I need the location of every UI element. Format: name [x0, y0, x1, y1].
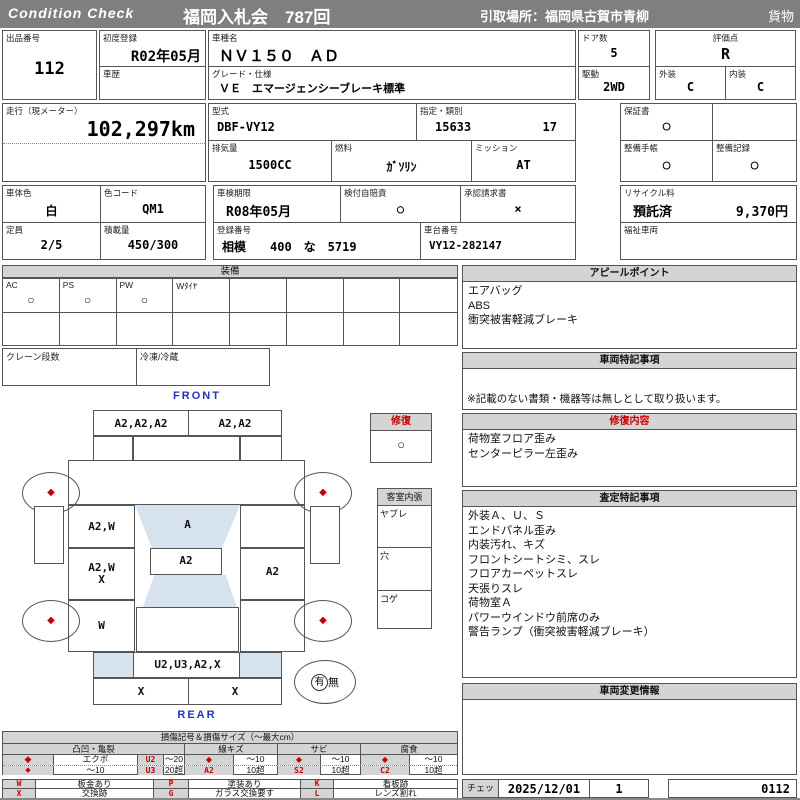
load-label: 積載量 [104, 224, 130, 236]
legend-code-u3: U3 [138, 766, 164, 775]
repair-flag-mark: ○ [371, 437, 431, 452]
check-date: 2025/12/01 [508, 782, 580, 796]
score-label: 評価点 [656, 32, 795, 44]
assessment-line: 荷物室Ａ [463, 596, 796, 611]
damage-diamond-icon: ◆ [319, 616, 327, 626]
equipment-mark: ○ [60, 293, 116, 307]
legend-size: ～10 [410, 755, 457, 765]
left-side-rail [34, 506, 64, 564]
sheet-code: 0112 [761, 782, 796, 796]
first-reg-value: R02年05月 [131, 46, 201, 66]
rear-label: REAR [152, 709, 242, 721]
legend-code-u2: U2 [138, 755, 164, 765]
recycle-status: 預託済 [633, 201, 672, 220]
spare-tire-mark: 有 無 [294, 660, 356, 704]
cabin-row-burn: コゲ [378, 591, 431, 628]
maintenance-book-mark: ○ [621, 158, 712, 173]
equipment-cell-empty [230, 279, 287, 313]
header-bar: Condition Check 福岡入札会 787回 引取場所：福岡県古賀市青柳… [0, 0, 800, 28]
legend-code-k-label: 看板跡 [334, 780, 457, 788]
grade-label: グレード・仕様 [212, 68, 272, 80]
cabin-lining-box: 客室内張 ヤブレ 穴 コゲ [377, 488, 432, 629]
legend-size: 10超 [410, 766, 457, 775]
interior-value: C [726, 80, 795, 94]
vehicle-notes-disclaimer: ※記載のない書類・機器等は無しとして取り扱います。 [467, 391, 726, 406]
assessment-line: エンドパネル歪み [463, 524, 796, 539]
vehicle-notes-title: 車両特記事項 [463, 353, 796, 369]
legend-group-corrosion: 腐食 [361, 744, 457, 754]
type-label: 型式 [212, 105, 229, 117]
color-box: 車体色 白 色コード QM1 定員 2/5 積載量 450/300 [2, 185, 206, 260]
maintenance-record-mark: ○ [713, 158, 796, 173]
appeal-line: ABS [463, 299, 796, 314]
repair-flag-title: 修復 [371, 414, 431, 431]
assessment-line: 天張りスレ [463, 582, 796, 597]
left-front-fender: A2,W [68, 505, 135, 548]
repair-code-legend-table: W 板金あり P 塗装あり K 看板跡 X 交換跡 G ガラス交換要す L レン… [2, 779, 458, 800]
repair-content-section: 修復内容 荷物室フロア歪み センターピラー左歪み [462, 413, 797, 487]
roof-panel: A2 [150, 548, 222, 575]
rear-gate-strip: X X [93, 678, 282, 705]
left-front-fender-damage: A2,W [69, 520, 134, 533]
insurance-label: 検付自賠責 [344, 187, 387, 199]
equipment-cell-empty [344, 279, 401, 313]
left-side-damage-2: X [69, 573, 134, 586]
front-center-panel [133, 436, 240, 461]
lot-number-value: 112 [3, 59, 96, 79]
equipment-cell-empty [3, 313, 60, 345]
crane-reefer-box: クレーン段数 冷凍/冷蔵 [2, 348, 270, 386]
front-bumper-left-damage: A2,A2,A2 [94, 417, 188, 430]
documents-box: 保証書 ○ 整備手帳 ○ 整備記録 ○ [620, 103, 797, 182]
right-front-fender [240, 505, 305, 548]
rear-gate-left-damage: X [94, 685, 188, 698]
vehicle-notes-section: 車両特記事項 ※記載のない書類・機器等は無しとして取り扱います。 [462, 352, 797, 410]
repair-line: 荷物室フロア歪み [463, 432, 796, 447]
auction-title: 福岡入札会 787回 [183, 3, 330, 28]
appeal-line: エアバッグ [463, 284, 796, 299]
capacity-value: 2/5 [3, 238, 100, 252]
body-color-value: 白 [3, 202, 100, 219]
equipment-cell-ps: PS ○ [60, 279, 117, 313]
type-value: DBF-VY12 [217, 120, 275, 134]
cabin-lining-title: 客室内張 [378, 489, 431, 506]
check-date-cell: 2025/12/01 [498, 779, 590, 798]
assessment-notes-title: 査定特記事項 [463, 491, 796, 507]
equipment-cell-empty [173, 313, 230, 345]
interior-label: 内装 [729, 68, 746, 80]
equipment-label: Wﾀｲﾔ [176, 280, 197, 292]
inspection-label: 車検期限 [217, 187, 251, 199]
class-label: 指定・類別 [420, 105, 463, 117]
warranty-label: 保証書 [624, 105, 650, 117]
legend-size: 20超 [164, 766, 185, 775]
assessment-line: 警告ランプ（衝突被害軽減ブレーキ） [463, 625, 796, 640]
cabin-row-tear: ヤブレ [378, 506, 431, 548]
capacity-label: 定員 [6, 224, 23, 236]
registration-box: 初度登録 R02年05月 車歴 [99, 30, 206, 100]
model-label: 車種名 [212, 32, 238, 44]
maintenance-record-label: 整備記録 [716, 142, 750, 154]
approval-mark: × [461, 202, 575, 216]
inspection-box: 車検期限 R08年05月 検付自賠責 ○ 承認請求書 × 登録番号 相模 400… [213, 185, 576, 260]
windshield: A [135, 505, 240, 548]
model-box: 車種名 ＮＶ１５０ ＡＤ グレード・仕様 ＶＥ エマージェンシーブレーキ標準 [208, 30, 576, 100]
legend-code-a2: A2 [185, 766, 234, 775]
lot-number-label: 出品番号 [6, 32, 40, 44]
equipment-cell-wtire: Wﾀｲﾔ [173, 279, 230, 313]
crane-label: クレーン段数 [6, 350, 60, 363]
equipment-cell-empty [117, 313, 174, 345]
rear-bumper: U2,U3,A2,X [93, 652, 282, 678]
displacement-label: 排気量 [212, 142, 238, 154]
appeal-points-section: アピールポイント エアバッグ ABS 衝突被害軽減ブレーキ [462, 265, 797, 349]
chassis-value: VY12-282147 [429, 239, 502, 252]
front-label: FRONT [152, 390, 242, 402]
legend-diamond-icon: ◆ [361, 755, 410, 765]
front-left-corner [93, 436, 133, 461]
mileage-label: 走行（現メーター） [6, 105, 83, 117]
color-code-value: QM1 [101, 202, 205, 216]
equipment-cell-empty [60, 313, 117, 345]
doors-value: 5 [579, 46, 649, 60]
cabin-row-hole: 穴 [378, 548, 431, 591]
assessment-line: パワーウインドウ前席のみ [463, 611, 796, 626]
equipment-grid: AC ○ PS ○ PW ○ Wﾀｲﾔ [2, 278, 458, 346]
legend-group-dent: 凸凹・亀裂 [3, 744, 185, 754]
assessment-line: フロントシートシミ、スレ [463, 553, 796, 568]
left-side-panel: A2,W X [68, 548, 135, 600]
check-label-cell: チェック [462, 779, 499, 798]
assessment-line: フロアカーペットスレ [463, 567, 796, 582]
equipment-title-bar: 装備 [2, 265, 458, 278]
drive-label: 駆動 [582, 68, 599, 80]
hood-panel [68, 460, 305, 505]
legend-code-s2: S2 [278, 766, 321, 775]
damage-diamond-icon: ◆ [319, 488, 327, 498]
vehicle-category: 貨物 [768, 6, 794, 25]
doors-label: ドア数 [582, 32, 608, 44]
legend-title: 損傷記号＆損傷サイズ（～最大cm） [3, 732, 457, 743]
chassis-label: 車台番号 [424, 224, 458, 236]
mileage-value: 102,297km [87, 117, 195, 141]
spare-present: 有 [311, 674, 328, 691]
change-info-section: 車両変更情報 [462, 683, 797, 775]
check-count-cell: 1 [589, 779, 649, 798]
right-side-panel: A2 [240, 548, 305, 600]
assessment-line: 外装Ａ、Ｕ、Ｓ [463, 509, 796, 524]
legend-group-rust: サビ [278, 744, 361, 754]
equipment-cell-empty [230, 313, 287, 345]
score-box: 評価点 R 外装 C 内装 C [655, 30, 796, 100]
spare-absent: 無 [328, 674, 339, 690]
equipment-cell-empty [344, 313, 401, 345]
engine-box: 型式 DBF-VY12 指定・類別 15633 17 排気量 1500CC 燃料… [208, 103, 576, 182]
equipment-cell-empty [287, 313, 344, 345]
legend-size: ～10 [54, 766, 138, 775]
fuel-value: ｶﾞｿﾘﾝ [332, 158, 471, 175]
legend-code-c2: C2 [361, 766, 410, 775]
legend-code-w-label: 板金あり [36, 780, 154, 788]
recycle-box: リサイクル料 預託済 9,370円 福祉車両 [620, 185, 797, 260]
legend-size: ～20 [164, 755, 185, 765]
score-value: R [656, 45, 795, 63]
maintenance-book-label: 整備手帳 [624, 142, 658, 154]
front-right-corner [240, 436, 282, 461]
displacement-value: 1500CC [209, 158, 331, 172]
first-reg-label: 初度登録 [103, 32, 137, 44]
reg-no-label: 登録番号 [217, 224, 251, 236]
left-rear-damage: W [69, 619, 134, 632]
damage-diagram: FRONT ◆ ◆ ◆ ◆ A2,A2,A2 A2,A2 A2,W [0, 388, 460, 728]
exterior-value: C [656, 80, 725, 94]
equipment-cell-pw: PW ○ [117, 279, 174, 313]
equipment-label: PW [120, 280, 134, 290]
warranty-mark: ○ [621, 119, 712, 134]
mission-value: AT [472, 158, 575, 172]
appeal-points-title: アピールポイント [463, 266, 796, 282]
rear-window [143, 575, 237, 607]
reg-no-value: 相模 400 な 5719 [222, 238, 357, 255]
legend-size: ～10 [234, 755, 278, 765]
fuel-label: 燃料 [335, 142, 352, 154]
left-rear-fender: W [68, 600, 135, 652]
check-count: 1 [615, 782, 622, 796]
damage-legend-table: 損傷記号＆損傷サイズ（～最大cm） 凸凹・亀裂 線キズ サビ 腐食 ◆ エクボ … [2, 731, 458, 775]
legend-size: 10超 [234, 766, 278, 775]
class-value-1: 15633 [435, 120, 471, 134]
legend-code-w: W [3, 780, 36, 788]
repair-content-title: 修復内容 [463, 414, 796, 430]
assessment-notes-section: 査定特記事項 外装Ａ、Ｕ、Ｓ エンドパネル歪み 内装汚れ、キズ フロントシートシ… [462, 490, 797, 678]
assessment-line: 内装汚れ、キズ [463, 538, 796, 553]
brand-logo: Condition Check [8, 5, 134, 21]
welfare-label: 福祉車両 [624, 224, 658, 236]
mileage-box: 走行（現メーター） 102,297km [2, 103, 206, 182]
load-value: 450/300 [101, 238, 205, 252]
exterior-label: 外装 [659, 68, 676, 80]
front-bumper-right-damage: A2,A2 [189, 417, 281, 430]
right-rear-fender [240, 600, 305, 652]
sheet-code-cell: 0112 [668, 779, 797, 798]
equipment-cell-empty [400, 313, 457, 345]
reefer-label: 冷凍/冷蔵 [140, 350, 179, 363]
damage-diamond-icon: ◆ [47, 488, 55, 498]
doors-drive-box: ドア数 5 駆動 2WD [578, 30, 650, 100]
legend-diamond-large-icon: ◆ [3, 755, 54, 765]
legend-size: ～10 [321, 755, 361, 765]
equipment-label: AC [6, 280, 18, 290]
right-side-rail [310, 506, 340, 564]
appeal-line: 衝突被害軽減ブレーキ [463, 313, 796, 328]
legend-group-scratch: 線キズ [185, 744, 278, 754]
legend-size: 10超 [321, 766, 361, 775]
grade-value: ＶＥ エマージェンシーブレーキ標準 [219, 80, 405, 96]
mission-label: ミッション [475, 142, 518, 154]
roof-damage: A2 [151, 554, 221, 567]
color-code-label: 色コード [104, 187, 138, 199]
legend-dent-label: エクボ [54, 755, 138, 765]
pickup-location: 引取場所：福岡県古賀市青柳 [480, 6, 649, 25]
legend-code-k: K [301, 780, 334, 788]
class-value-2: 17 [543, 120, 557, 134]
windshield-damage: A [135, 518, 240, 531]
change-info-title: 車両変更情報 [463, 684, 796, 700]
rear-bumper-damage: U2,U3,A2,X [94, 658, 281, 671]
divider [3, 143, 205, 144]
rear-gate-right-damage: X [189, 685, 281, 698]
damage-diamond-icon: ◆ [47, 616, 55, 626]
recycle-label: リサイクル料 [624, 187, 675, 199]
condition-check-sheet: Condition Check 福岡入札会 787回 引取場所：福岡県古賀市青柳… [0, 0, 800, 800]
right-side-damage: A2 [241, 565, 304, 578]
lot-number-box: 出品番号 112 [2, 30, 97, 100]
equipment-mark: ○ [117, 293, 173, 307]
cargo-area [136, 607, 239, 652]
equipment-cell-empty [400, 279, 457, 313]
legend-diamond-small-icon: ◆ [3, 766, 54, 775]
legend-diamond-icon: ◆ [278, 755, 321, 765]
drive-value: 2WD [579, 80, 649, 94]
inspection-value: R08年05月 [226, 201, 291, 220]
repair-line: センターピラー左歪み [463, 447, 796, 462]
recycle-fee: 9,370円 [736, 201, 788, 220]
front-bumper: A2,A2,A2 A2,A2 [93, 410, 282, 436]
equipment-cell-ac: AC ○ [3, 279, 60, 313]
model-value: ＮＶ１５０ ＡＤ [219, 45, 339, 66]
equipment-cell-empty [287, 279, 344, 313]
equipment-mark: ○ [3, 293, 59, 307]
legend-code-p-label: 塗装あり [189, 780, 301, 788]
equipment-label: PS [63, 280, 74, 290]
approval-label: 承認請求書 [464, 187, 507, 199]
body-color-label: 車体色 [6, 187, 32, 199]
legend-code-p: P [154, 780, 189, 788]
legend-diamond-icon: ◆ [185, 755, 234, 765]
repair-flag-box: 修復 ○ [370, 413, 432, 463]
history-label: 車歴 [103, 68, 120, 80]
insurance-mark: ○ [341, 202, 460, 216]
